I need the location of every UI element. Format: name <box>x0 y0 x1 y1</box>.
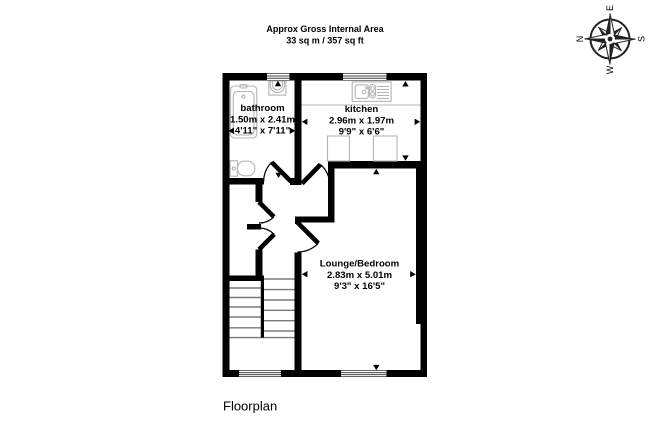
svg-text:1.50m x 2.41m: 1.50m x 2.41m <box>230 114 295 125</box>
svg-text:Approx Gross Internal Area: Approx Gross Internal Area <box>266 24 384 34</box>
svg-text:bathroom: bathroom <box>240 103 284 114</box>
svg-text:kitchen: kitchen <box>345 104 379 115</box>
svg-text:9'9" x 6'6": 9'9" x 6'6" <box>339 126 385 137</box>
svg-text:E: E <box>605 5 615 11</box>
svg-text:9'3" x 16'5": 9'3" x 16'5" <box>334 281 385 292</box>
svg-text:Lounge/Bedroom: Lounge/Bedroom <box>320 259 399 270</box>
svg-text:2.83m x 5.01m: 2.83m x 5.01m <box>327 270 392 281</box>
svg-text:33 sq m / 357 sq ft: 33 sq m / 357 sq ft <box>286 35 364 45</box>
svg-text:N: N <box>575 36 585 43</box>
svg-text:2.96m x 1.97m: 2.96m x 1.97m <box>329 115 394 126</box>
svg-text:4'11" x 7'11": 4'11" x 7'11" <box>235 126 290 137</box>
svg-text:S: S <box>637 36 647 42</box>
svg-text:W: W <box>605 65 615 74</box>
svg-text:Floorplan: Floorplan <box>223 399 277 414</box>
